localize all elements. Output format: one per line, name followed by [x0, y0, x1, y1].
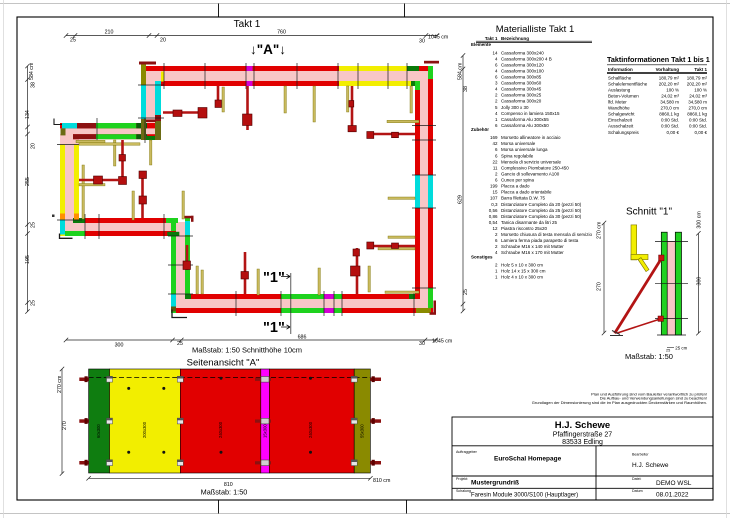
svg-text:25: 25	[177, 341, 183, 347]
svg-text:584 cm: 584 cm	[458, 62, 464, 80]
svg-text:0:00 Std.: 0:00 Std.	[661, 118, 679, 123]
svg-text:202,20 m²: 202,20 m²	[659, 81, 680, 86]
svg-text:300: 300	[697, 277, 703, 286]
svg-text:Auftraggeber: Auftraggeber	[456, 450, 478, 454]
svg-text:1045 cm: 1045 cm	[428, 35, 449, 41]
svg-text:Faresin Module 3000/S100 (Haup: Faresin Module 3000/S100 (Hauptlager)	[471, 493, 578, 499]
svg-text:180,79 m²: 180,79 m²	[687, 75, 708, 80]
svg-text:30: 30	[419, 341, 425, 347]
svg-text:Compenso in lamiera 150x15: Compenso in lamiera 150x15	[501, 111, 560, 116]
svg-text:Gancio di sollevamento A100: Gancio di sollevamento A100	[501, 172, 560, 177]
svg-text:270,0 cm: 270,0 cm	[688, 106, 707, 111]
svg-text:25: 25	[463, 289, 469, 295]
svg-text:08.01.2022: 08.01.2022	[656, 492, 689, 499]
svg-text:Sonstiges: Sonstiges	[471, 254, 493, 259]
svg-text:30: 30	[419, 39, 425, 45]
svg-text:270,0 cm: 270,0 cm	[660, 106, 679, 111]
svg-text:Maßstab: 1:50 Schnitthöhe: Maßstab: 1:50 Schnitthöhe 10cm	[192, 346, 302, 355]
svg-text:25: 25	[31, 222, 37, 228]
svg-text:Cassaforma 300x120: Cassaforma 300x120	[501, 62, 544, 67]
svg-text:270 cm: 270 cm	[597, 221, 603, 239]
svg-text:Schalfläche: Schalfläche	[608, 75, 632, 80]
svg-text:Morsetto allineatore in acciai: Morsetto allineatore in acciaio	[501, 135, 561, 140]
svg-text:255: 255	[25, 177, 31, 186]
svg-text:22: 22	[492, 159, 498, 164]
svg-text:100 %: 100 %	[666, 88, 679, 93]
svg-text:Einschalzeit: Einschalzeit	[608, 118, 633, 123]
svg-text:Complessivo Piombatore 250-450: Complessivo Piombatore 250-450	[501, 165, 569, 170]
svg-text:Schalelementfläche: Schalelementfläche	[608, 81, 648, 86]
svg-text:Holz 4 x 10 x 300 cm: Holz 4 x 10 x 300 cm	[501, 275, 543, 280]
svg-text:Cassaforma 300x20: Cassaforma 300x20	[501, 99, 542, 104]
svg-text:25: 25	[31, 300, 37, 306]
svg-text:14: 14	[492, 50, 498, 55]
svg-text:34,580 m: 34,580 m	[660, 100, 679, 105]
svg-text:200x300: 200x300	[142, 421, 147, 438]
svg-text:Cassaforma 300x100: Cassaforma 300x100	[501, 68, 544, 73]
svg-text:42: 42	[492, 141, 498, 146]
svg-text:55x300: 55x300	[360, 424, 365, 438]
svg-text:Elemente: Elemente	[471, 42, 492, 47]
svg-text:25: 25	[70, 38, 76, 44]
svg-text:270: 270	[597, 282, 603, 291]
svg-text:Jolly 300 x 30: Jolly 300 x 30	[501, 105, 529, 110]
svg-text:240x300: 240x300	[218, 421, 223, 438]
svg-text:180,79 m²: 180,79 m²	[659, 75, 680, 80]
svg-text:Information: Information	[608, 67, 633, 72]
svg-text:lfd. Meter: lfd. Meter	[608, 100, 627, 105]
svg-text:0,54: 0,54	[489, 220, 498, 225]
svg-text:"1": "1"	[263, 270, 285, 286]
svg-text:↓"A"↓: ↓"A"↓	[250, 42, 286, 57]
svg-text:Cassaforma Alu 300x50: Cassaforma Alu 300x50	[501, 123, 549, 128]
svg-text:100 %: 100 %	[694, 88, 707, 93]
svg-text:Spina regolabile: Spina regolabile	[501, 153, 534, 158]
svg-text:Schraube M16 x 170 mit Mutter: Schraube M16 x 170 mit Mutter	[501, 250, 564, 255]
svg-text:Datei:: Datei:	[632, 477, 641, 481]
svg-text:Cassaforma 300x240: Cassaforma 300x240	[501, 50, 544, 55]
svg-text:Schalgewicht: Schalgewicht	[608, 112, 635, 117]
svg-text:Cuneo per spina: Cuneo per spina	[501, 178, 535, 183]
svg-text:Cassaforma 300x200 4 B: Cassaforma 300x200 4 B	[501, 56, 552, 61]
svg-text:60x300: 60x300	[96, 424, 101, 438]
svg-text:0,00 €: 0,00 €	[666, 130, 679, 135]
svg-text:Datum: Datum	[632, 489, 643, 493]
svg-text:270: 270	[62, 421, 68, 430]
svg-text:Cassaforma 300x25: Cassaforma 300x25	[501, 93, 542, 98]
svg-text:Schalung: Schalung	[456, 489, 471, 493]
svg-text:Grundlagen der Dimensionierung: Grundlagen der Dimensionierung sind die …	[532, 400, 707, 405]
svg-text:Beton-Volumen: Beton-Volumen	[608, 94, 639, 99]
svg-text:270 cm: 270 cm	[57, 375, 63, 393]
svg-text:210: 210	[105, 30, 114, 36]
svg-text:Wandhöhe: Wandhöhe	[608, 106, 630, 111]
svg-text:"1": "1"	[263, 320, 285, 336]
svg-text:38: 38	[31, 82, 37, 88]
svg-text:Bearbeiter: Bearbeiter	[632, 452, 649, 456]
svg-text:Auslastung: Auslastung	[608, 88, 631, 93]
svg-text:Holz 5 x 10 x 300 cm: Holz 5 x 10 x 300 cm	[501, 262, 543, 267]
svg-text:83533 Edling: 83533 Edling	[562, 439, 603, 446]
svg-text:Bezeichnung: Bezeichnung	[501, 36, 529, 41]
svg-text:8860,1 kg: 8860,1 kg	[687, 112, 707, 117]
svg-text:Cassaforma 300x85: Cassaforma 300x85	[501, 75, 542, 80]
svg-text:Morsa universale lunga: Morsa universale lunga	[501, 147, 548, 152]
svg-text:8860,1 kg: 8860,1 kg	[659, 112, 679, 117]
svg-text:Mensola di servizio universale: Mensola di servizio universale	[501, 159, 562, 164]
svg-text:Pfaffingerstraße 27: Pfaffingerstraße 27	[553, 432, 613, 439]
svg-text:199: 199	[490, 184, 498, 189]
svg-text:15: 15	[492, 190, 498, 195]
svg-text:Morsetto chiusura di testa men: Morsetto chiusura di testa mensola di se…	[501, 232, 593, 237]
svg-text:11: 11	[493, 165, 498, 170]
svg-text:584 cm: 584 cm	[29, 62, 35, 80]
svg-text:Tanica disarmante da litri 25: Tanica disarmante da litri 25	[501, 220, 558, 225]
svg-text:Distanziatore Completo da 30 (: Distanziatore Completo da 30 (pezzi 50)	[501, 214, 582, 219]
svg-text:Cassaforma Alu 300x55: Cassaforma Alu 300x55	[501, 117, 549, 122]
svg-text:1045 cm: 1045 cm	[432, 339, 453, 345]
svg-text:EuroSchal Homepage: EuroSchal Homepage	[494, 456, 562, 463]
svg-text:0:00 Std.: 0:00 Std.	[689, 124, 707, 129]
svg-text:760: 760	[277, 30, 286, 36]
svg-text:Takt 1: Takt 1	[485, 36, 498, 41]
svg-text:Materialliste Takt 1: Materialliste Takt 1	[496, 24, 575, 35]
svg-text:Holz 14 x 15 x 300 cm: Holz 14 x 15 x 300 cm	[501, 268, 546, 273]
svg-text:Schalungspreis: Schalungspreis	[608, 130, 640, 135]
svg-text:H.J. Schewe: H.J. Schewe	[555, 420, 610, 431]
svg-text:Projekt:: Projekt:	[456, 477, 468, 481]
svg-text:Placca a dado: Placca a dado	[501, 184, 530, 189]
svg-text:20: 20	[160, 38, 166, 44]
svg-text:Maßstab: 1:50: Maßstab: 1:50	[625, 352, 673, 361]
svg-text:810 cm: 810 cm	[373, 478, 391, 484]
svg-text:134: 134	[25, 110, 31, 119]
svg-text:Mustergrundriß: Mustergrundriß	[471, 479, 519, 486]
svg-text:Takt 1: Takt 1	[694, 67, 707, 72]
svg-text:0,3: 0,3	[491, 202, 498, 207]
svg-text:Distanziatore Completo da 25 (: Distanziatore Completo da 25 (pezzi 50)	[501, 208, 582, 213]
svg-text:12: 12	[492, 226, 498, 231]
svg-text:629: 629	[458, 195, 464, 204]
svg-text:H.J. Schewe: H.J. Schewe	[632, 462, 669, 469]
svg-text:Schraube M16 x 140 mit Mutter: Schraube M16 x 140 mit Mutter	[501, 244, 564, 249]
svg-text:20: 20	[31, 143, 37, 149]
svg-text:107: 107	[490, 196, 498, 201]
svg-text:38: 38	[463, 86, 469, 92]
svg-text:0,86: 0,86	[489, 214, 498, 219]
svg-text:Ausschalzeit: Ausschalzeit	[608, 124, 634, 129]
svg-text:Seitenansicht "A": Seitenansicht "A"	[187, 357, 260, 368]
svg-text:0:00 Std.: 0:00 Std.	[661, 124, 679, 129]
svg-text:Cassaforma 300x60: Cassaforma 300x60	[501, 81, 542, 86]
svg-text:300: 300	[115, 343, 124, 349]
svg-text:Takt 1: Takt 1	[234, 19, 261, 30]
svg-text:Morsa universale: Morsa universale	[501, 141, 536, 146]
svg-text:240x300: 240x300	[308, 421, 313, 438]
svg-text:Vorhaltung: Vorhaltung	[656, 67, 680, 72]
svg-text:Maßstab: 1:50: Maßstab: 1:50	[201, 487, 248, 496]
svg-text:686: 686	[298, 335, 307, 341]
svg-text:Barra filettata D.W. 75: Barra filettata D.W. 75	[501, 196, 546, 201]
svg-text:15x300: 15x300	[263, 424, 268, 438]
svg-text:0:00 Std.: 0:00 Std.	[689, 118, 707, 123]
svg-text:0,56: 0,56	[489, 208, 498, 213]
svg-text:Schnitt "1": Schnitt "1"	[626, 206, 672, 217]
svg-text:Lamiera ferma piada parapetto: Lamiera ferma piada parapetto di testa	[501, 238, 579, 243]
svg-text:0,00 €: 0,00 €	[694, 130, 707, 135]
svg-text:34,580 m: 34,580 m	[688, 100, 707, 105]
svg-text:169: 169	[490, 135, 498, 140]
svg-text:24,02 m³: 24,02 m³	[661, 94, 679, 99]
svg-text:Taktinformationen Takt 1 bis: Taktinformationen Takt 1 bis 1	[607, 55, 710, 64]
svg-text:195: 195	[25, 255, 31, 264]
svg-text:Placca a dado orientabile: Placca a dado orientabile	[501, 190, 552, 195]
svg-text:300 cm: 300 cm	[697, 211, 703, 229]
svg-text:DEMO WSL: DEMO WSL	[656, 480, 692, 487]
svg-text:202,20 m²: 202,20 m²	[687, 81, 708, 86]
svg-text:Cassaforma 300x45: Cassaforma 300x45	[501, 87, 542, 92]
svg-text:Distanziatore Completo da 20 (: Distanziatore Completo da 20 (pezzi 50)	[501, 202, 582, 207]
svg-text:25 cm: 25 cm	[675, 346, 687, 351]
svg-text:Zubehör: Zubehör	[471, 127, 489, 132]
svg-text:Piastra riscontro 25x20: Piastra riscontro 25x20	[501, 226, 548, 231]
svg-text:24,02 m³: 24,02 m³	[689, 94, 707, 99]
